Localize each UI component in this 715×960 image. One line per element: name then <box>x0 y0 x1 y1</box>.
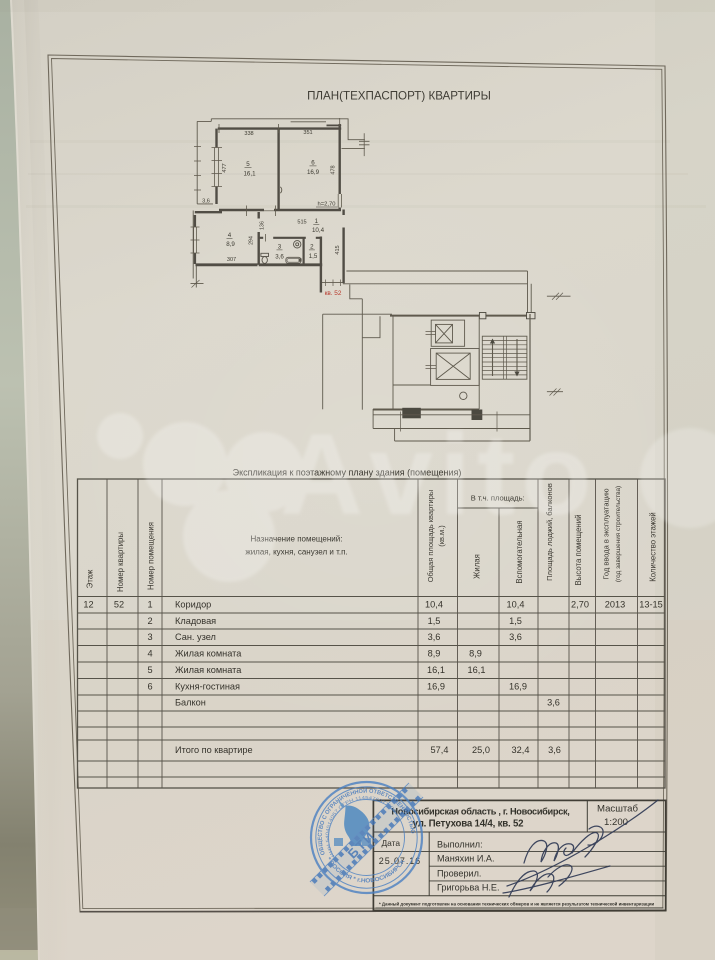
svg-text:10,4: 10,4 <box>507 600 525 610</box>
svg-text:(год завершения строительства): (год завершения строительства) <box>615 486 622 582</box>
svg-text:52: 52 <box>114 600 124 610</box>
svg-text:1:200: 1:200 <box>604 817 628 828</box>
svg-text:3,6: 3,6 <box>275 253 284 260</box>
svg-text:16,9: 16,9 <box>427 681 445 691</box>
svg-text:294: 294 <box>248 236 254 245</box>
svg-text:136: 136 <box>259 221 265 230</box>
svg-text:Номер помещения: Номер помещения <box>147 522 156 590</box>
svg-text:1,5: 1,5 <box>309 253 318 260</box>
svg-text:Дата: Дата <box>382 838 401 848</box>
svg-text:3,6: 3,6 <box>509 632 522 642</box>
svg-text:3: 3 <box>147 632 152 642</box>
svg-text:6: 6 <box>147 681 152 691</box>
svg-text:2013: 2013 <box>605 600 625 610</box>
svg-text:2: 2 <box>147 616 152 626</box>
svg-text:4: 4 <box>147 648 152 658</box>
svg-text:Жилая: Жилая <box>473 554 482 579</box>
svg-text:351: 351 <box>303 130 312 136</box>
svg-text:3,6: 3,6 <box>428 632 441 642</box>
svg-text:3,6: 3,6 <box>548 745 561 755</box>
svg-text:10,4: 10,4 <box>425 600 443 610</box>
svg-text:h=2,70: h=2,70 <box>318 202 336 208</box>
svg-text:ПЛАН(ТЕХПАСПОРТ) КВАРТИРЫ: ПЛАН(ТЕХПАСПОРТ) КВАРТИРЫ <box>307 90 491 103</box>
svg-text:Этаж: Этаж <box>86 569 95 588</box>
svg-text:8,9: 8,9 <box>226 241 235 248</box>
svg-text:Год ввода в эксплуатацию: Год ввода в эксплуатацию <box>602 488 611 580</box>
svg-text:16,1: 16,1 <box>427 665 445 675</box>
svg-text:1: 1 <box>147 600 152 610</box>
svg-text:3: 3 <box>278 244 282 251</box>
svg-text:Жилая комната: Жилая комната <box>175 665 242 675</box>
svg-text:кв. 52: кв. 52 <box>325 290 342 297</box>
svg-text:57,4: 57,4 <box>431 745 449 755</box>
svg-text:1,5: 1,5 <box>428 616 441 626</box>
svg-text:32,4: 32,4 <box>512 745 530 755</box>
svg-text:Проверил.: Проверил. <box>437 869 481 879</box>
svg-text:Количество этажей: Количество этажей <box>649 512 658 582</box>
svg-text:6: 6 <box>311 160 315 167</box>
svg-text:Сан. узел: Сан. узел <box>175 632 216 642</box>
svg-text:16,1: 16,1 <box>468 665 486 675</box>
svg-text:5: 5 <box>246 161 250 168</box>
svg-text:1,5: 1,5 <box>509 616 522 626</box>
svg-text:Маняхин И.А.: Маняхин И.А. <box>437 854 495 864</box>
svg-text:Номер квартиры: Номер квартиры <box>116 532 125 592</box>
svg-text:5: 5 <box>147 665 152 675</box>
svg-text:3,6: 3,6 <box>202 199 210 205</box>
svg-text:3,6: 3,6 <box>547 698 560 708</box>
svg-text:338: 338 <box>244 131 253 137</box>
svg-text:Жилая комната: Жилая комната <box>175 648 242 658</box>
svg-text:8,9: 8,9 <box>428 648 441 658</box>
svg-text:Балкон: Балкон <box>175 698 206 708</box>
svg-text:2: 2 <box>310 244 314 251</box>
svg-text:415: 415 <box>335 245 341 254</box>
svg-text:478: 478 <box>331 165 337 174</box>
svg-text:Коридор: Коридор <box>175 600 211 610</box>
svg-text:Кладовая: Кладовая <box>175 616 216 626</box>
svg-text:307: 307 <box>227 257 236 263</box>
svg-text:* Данный документ подготовлен: * Данный документ подготовлен на основан… <box>379 902 655 907</box>
svg-text:515: 515 <box>297 220 306 226</box>
svg-text:10,4: 10,4 <box>312 227 325 234</box>
svg-text:1: 1 <box>315 218 319 225</box>
svg-text:Итого по квартире: Итого по квартире <box>175 745 253 755</box>
svg-text:8,9: 8,9 <box>469 648 482 658</box>
svg-text:Аvito: Аvito <box>280 411 598 539</box>
svg-text:ул. Петухова 14/4, кв. 52: ул. Петухова 14/4, кв. 52 <box>413 819 524 830</box>
svg-text:16,9: 16,9 <box>307 169 320 176</box>
svg-text:Масштаб: Масштаб <box>597 804 639 815</box>
svg-text:16,9: 16,9 <box>509 681 527 691</box>
svg-text:12: 12 <box>83 600 93 610</box>
svg-text:Кухня-гостиная: Кухня-гостиная <box>175 681 240 691</box>
svg-text:25,0: 25,0 <box>472 745 490 755</box>
svg-text:2,70: 2,70 <box>571 600 589 610</box>
svg-text:477: 477 <box>222 163 228 172</box>
svg-text:Григорьва Н.Е.: Григорьва Н.Е. <box>437 883 500 893</box>
svg-text:16,1: 16,1 <box>243 171 256 178</box>
svg-text:13-15: 13-15 <box>639 600 663 610</box>
svg-text:Выполнил:: Выполнил: <box>437 840 483 850</box>
svg-text:4: 4 <box>228 232 232 239</box>
